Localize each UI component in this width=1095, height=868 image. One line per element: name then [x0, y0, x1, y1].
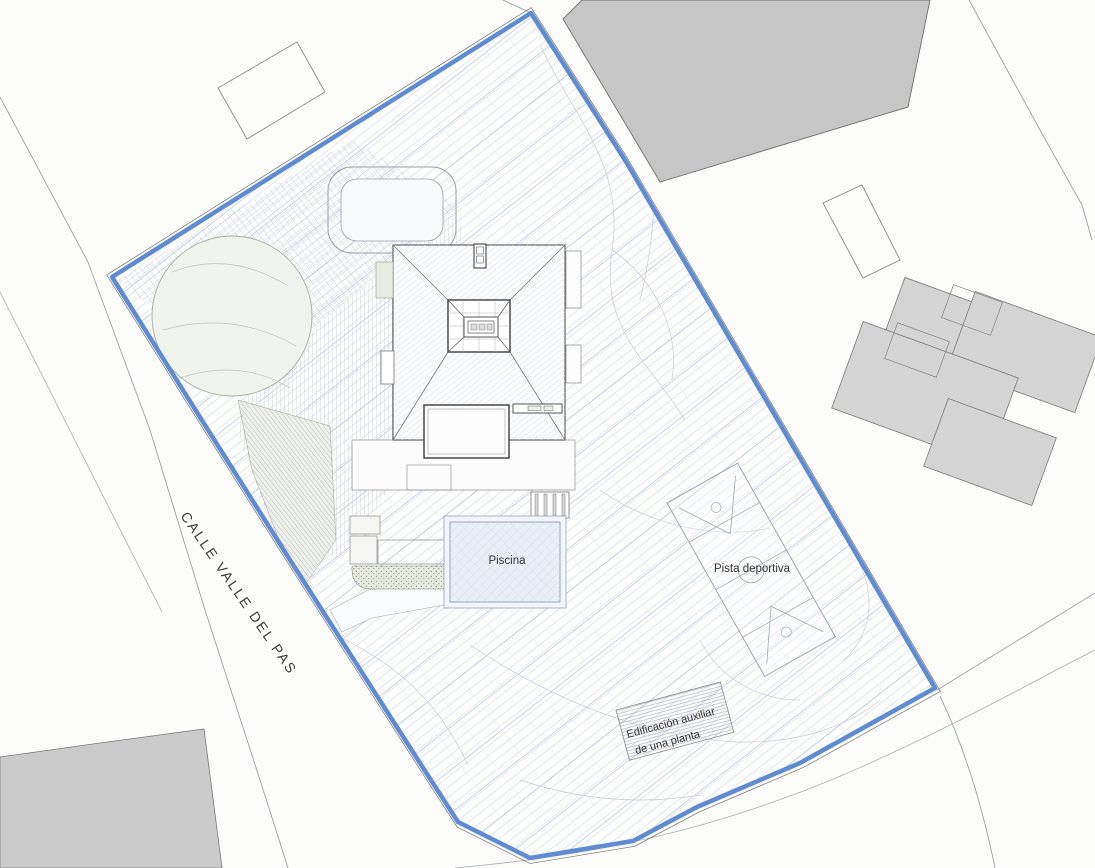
steps-lower: [350, 536, 377, 564]
roof-lantern: [448, 300, 510, 352]
gravel-bed: [352, 566, 447, 589]
chimney: [474, 244, 486, 268]
circular-lawn: [152, 236, 312, 396]
steps-upper: [350, 516, 380, 534]
pool-label: Piscina: [488, 555, 526, 567]
east-wing-upper: [566, 251, 581, 308]
site-plan-drawing: Piscina: [0, 0, 1095, 868]
courtyard-opening: [424, 405, 509, 458]
west-bay: [381, 351, 394, 384]
circular-lawn-outline: [152, 236, 312, 396]
courtyard-outline: [424, 405, 509, 458]
path-loop-inner: [341, 179, 443, 241]
sports-court-label: Pista deportiva: [714, 563, 791, 575]
east-wing-lower: [566, 345, 581, 383]
main-house: [376, 244, 581, 458]
site-plan-page: Piscina: [0, 0, 1095, 868]
swimming-pool: Piscina: [444, 516, 566, 608]
west-planter: [376, 262, 393, 298]
pergola: [531, 492, 569, 518]
